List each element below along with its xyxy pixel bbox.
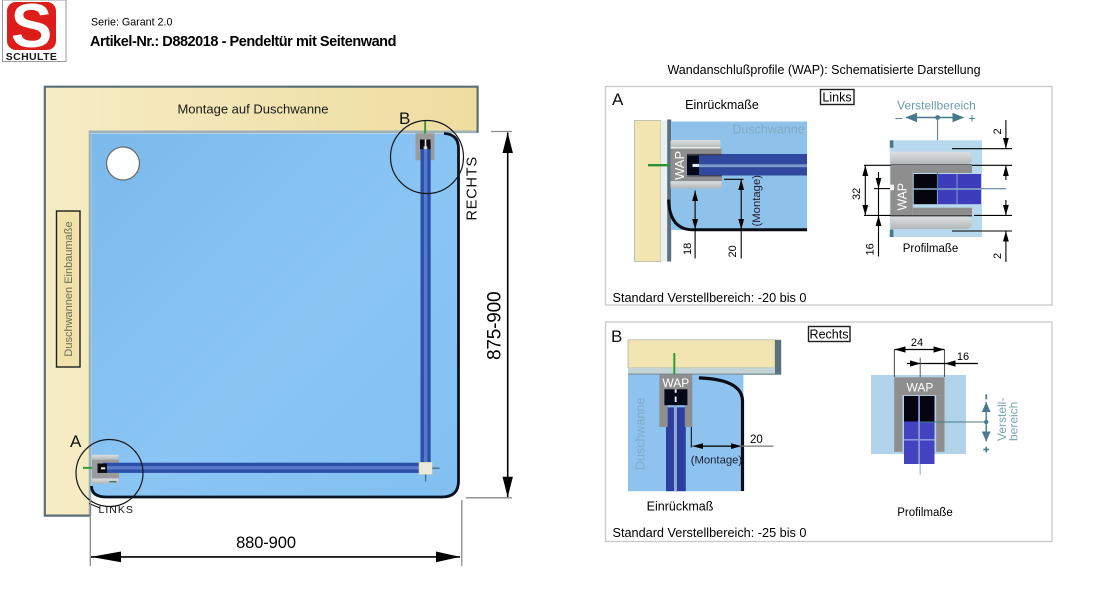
- svg-text:Rechts: Rechts: [810, 328, 849, 342]
- svg-text:875-900: 875-900: [485, 292, 506, 360]
- svg-text:SCHULTE: SCHULTE: [6, 51, 58, 63]
- svg-text:Serie: Garant 2.0: Serie: Garant 2.0: [91, 17, 172, 29]
- svg-text:(Montage): (Montage): [691, 455, 743, 467]
- svg-text:+: +: [968, 111, 976, 126]
- svg-text:WAP: WAP: [896, 183, 910, 210]
- svg-text:16: 16: [957, 351, 969, 363]
- svg-text:16: 16: [865, 243, 877, 255]
- svg-text:880-900: 880-900: [236, 534, 296, 552]
- svg-text:Duschwannen Einbaumaße: Duschwannen Einbaumaße: [63, 221, 75, 356]
- svg-text:2: 2: [992, 253, 1004, 259]
- svg-text:LINKS: LINKS: [99, 504, 134, 516]
- svg-text:18: 18: [682, 243, 694, 255]
- svg-text:20: 20: [750, 434, 763, 446]
- svg-text:Duschwanne: Duschwanne: [732, 123, 804, 137]
- svg-text:A: A: [70, 432, 82, 451]
- svg-text:RECHTS: RECHTS: [465, 156, 481, 220]
- svg-text:Montage auf Duschwanne: Montage auf Duschwanne: [177, 102, 328, 117]
- svg-text:B: B: [611, 327, 622, 346]
- svg-text:Einrückmaße: Einrückmaße: [685, 98, 759, 112]
- svg-text:WAP: WAP: [672, 151, 687, 180]
- svg-text:2: 2: [992, 128, 1004, 134]
- svg-text:Wandanschlußprofile (WAP): Sch: Wandanschlußprofile (WAP): Schematisiert…: [667, 63, 980, 77]
- svg-text:Artikel-Nr.: D882018 - Pendelt: Artikel-Nr.: D882018 - Pendeltür mit Sei…: [90, 34, 396, 50]
- svg-text:24: 24: [911, 337, 923, 349]
- svg-text:Profilmaße: Profilmaße: [903, 243, 959, 255]
- svg-text:A: A: [612, 90, 624, 109]
- svg-text:B: B: [399, 109, 410, 128]
- svg-text:Duschwanne: Duschwanne: [634, 398, 648, 470]
- svg-text:–: –: [895, 110, 903, 125]
- svg-text:Standard Verstellbereich: -20: Standard Verstellbereich: -20 bis 0: [613, 291, 807, 305]
- svg-text:Standard Verstellbereich: -25: Standard Verstellbereich: -25 bis 0: [613, 526, 807, 540]
- svg-text:20: 20: [727, 245, 739, 257]
- svg-text:32: 32: [851, 188, 863, 200]
- svg-text:bereich: bereich: [1007, 402, 1021, 441]
- svg-text:(Montage): (Montage): [751, 175, 763, 227]
- svg-text:Einrückmaß: Einrückmaß: [647, 500, 714, 514]
- svg-text:Profilmaße: Profilmaße: [897, 507, 953, 519]
- svg-text:Links: Links: [822, 91, 851, 105]
- svg-text:Verstellbereich: Verstellbereich: [897, 99, 976, 113]
- svg-text:WAP: WAP: [662, 376, 689, 390]
- svg-text:WAP: WAP: [907, 381, 934, 395]
